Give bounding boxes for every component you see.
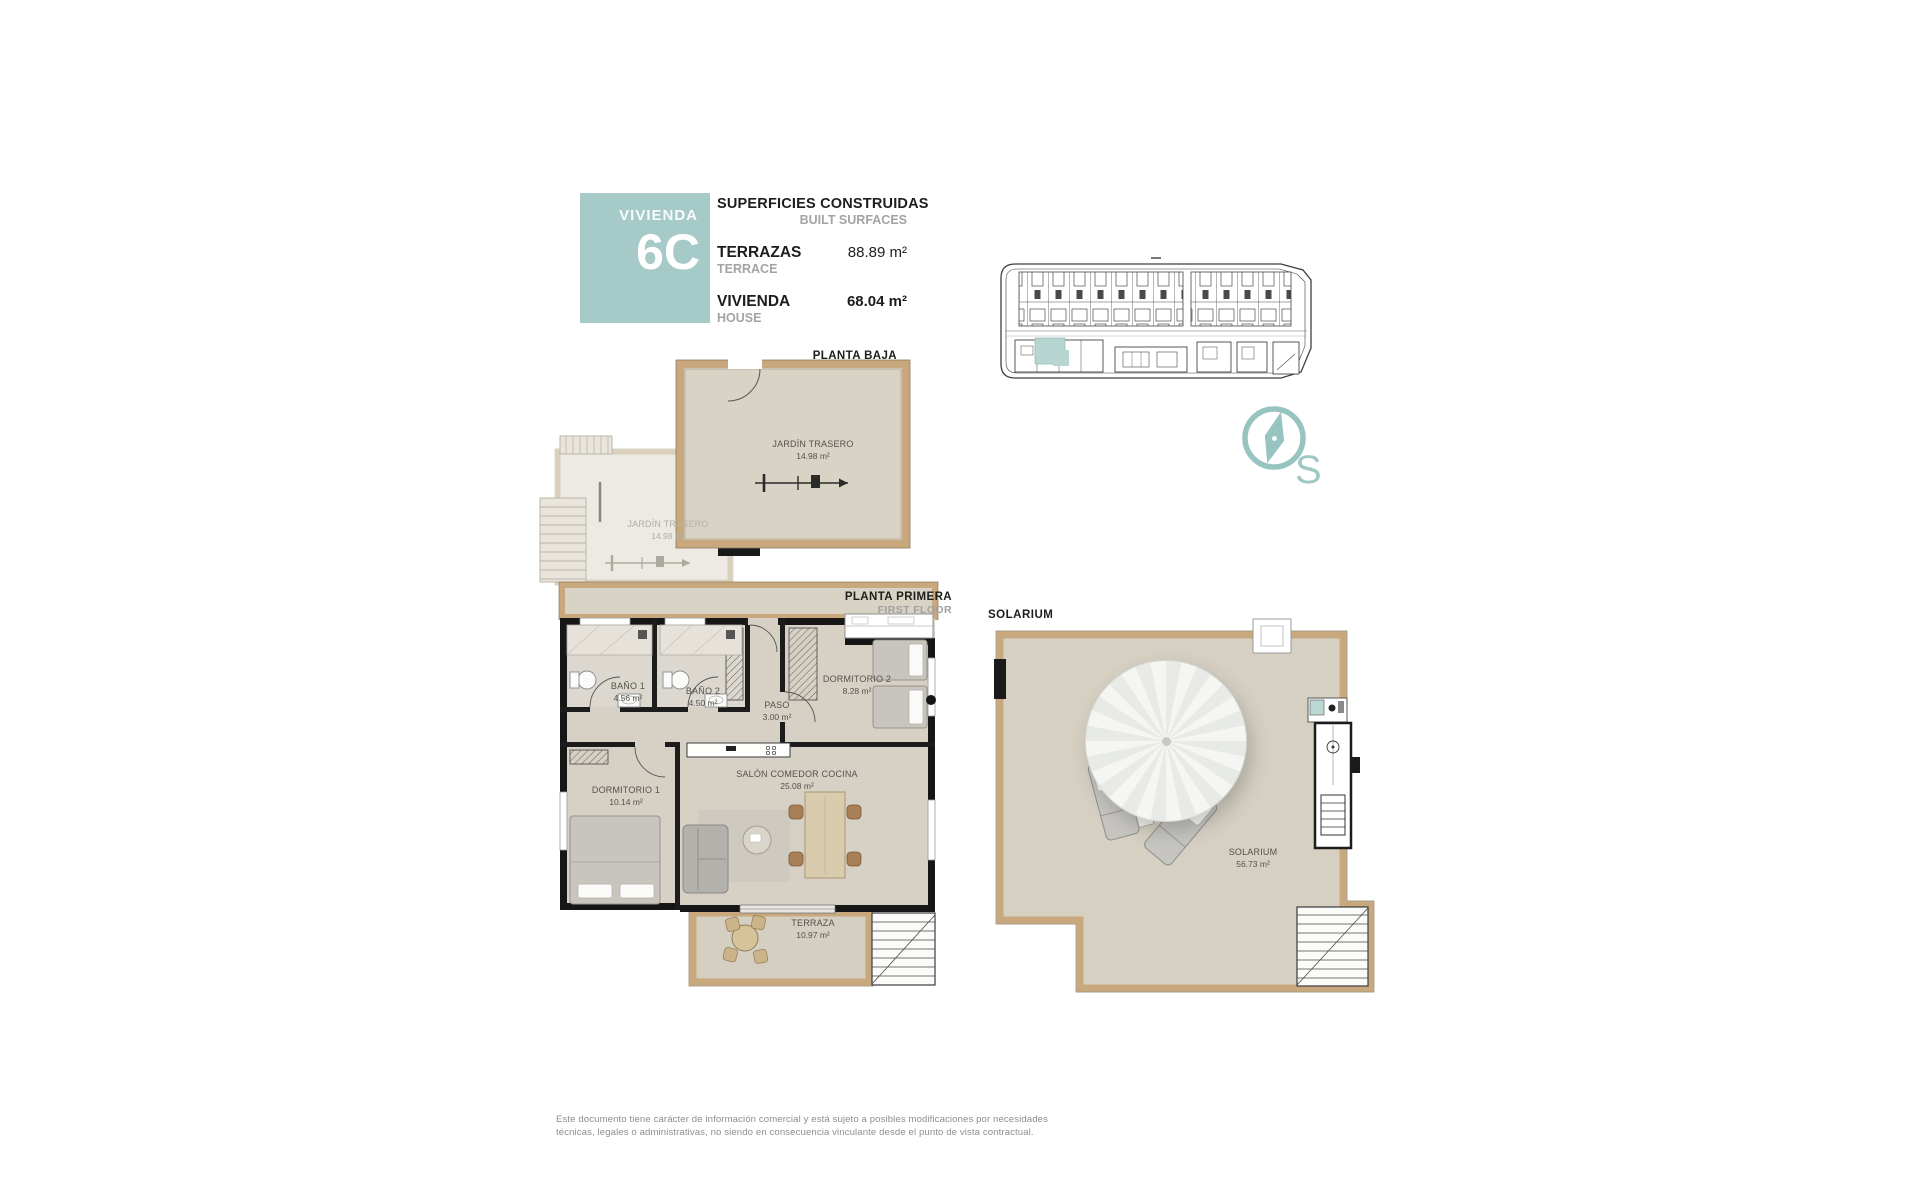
room-label-bano-1: BAÑO 1 4.56 m² (611, 680, 645, 704)
built-surfaces-table: SUPERFICIES CONSTRUIDAS BUILT SURFACES T… (717, 196, 907, 325)
surface-value: 68.04 m² (847, 293, 907, 310)
disclaimer-line-2: técnicas, legales o administrativas, no … (556, 1126, 1076, 1139)
surfaces-heading-es: SUPERFICIES CONSTRUIDAS (717, 196, 907, 212)
shower-tray-icon (1253, 619, 1291, 653)
stairs-icon (1297, 907, 1368, 986)
stairs-icon (540, 498, 586, 582)
floor-plan-sheet: VIVIENDA 6C SUPERFICIES CONSTRUIDAS BUIL… (0, 0, 1920, 1200)
room-label-terraza: TERRAZA 10.97 m² (791, 917, 834, 941)
stairs-icon (560, 436, 612, 454)
coffee-table-icon (743, 826, 771, 854)
room-label-dormitorio-2: DORMITORIO 2 8.28 m² (823, 673, 891, 697)
room-label-jardin-trasero: JARDÍN TRASERO 14.98 m² (772, 438, 853, 462)
surface-label-en: TERRACE (717, 262, 801, 276)
room-label-salon-comedor-cocina: SALÓN COMEDOR COCINA 25.08 m² (736, 768, 858, 792)
compass: S (1238, 398, 1338, 506)
utility-counter-icon (845, 614, 933, 638)
stairs-icon (872, 913, 935, 985)
surface-row-terrazas: TERRAZAS TERRACE 88.89 m² (717, 244, 907, 276)
disclaimer: Este documento tiene carácter de informa… (556, 1113, 1076, 1139)
boiler-icon (926, 695, 936, 705)
surface-label-en: HOUSE (717, 311, 790, 325)
room-label-bano-2: BAÑO 2 4.50 m² (686, 685, 720, 709)
sofa-icon (683, 825, 728, 893)
ground-floor-plan (530, 350, 950, 620)
surface-label-es: VIVIENDA (717, 293, 790, 311)
bar-unit-icon (1308, 698, 1360, 848)
double-bed-icon (570, 816, 660, 904)
disclaimer-line-1: Este documento tiene carácter de informa… (556, 1113, 1076, 1126)
surface-label-es: TERRAZAS (717, 244, 801, 262)
compass-icon (1238, 398, 1338, 506)
terrace (689, 909, 873, 986)
unit-badge: VIVIENDA 6C (580, 193, 710, 323)
umbrella-icon (1085, 660, 1247, 822)
unit-number: 6C (580, 227, 710, 277)
surface-value: 88.89 m² (848, 244, 907, 261)
unit-badge-label: VIVIENDA (580, 193, 710, 224)
room-label-solarium: SOLARIUM 56.73 m² (1229, 846, 1278, 870)
compass-south-label: S (1295, 448, 1322, 493)
access-door (994, 659, 1006, 699)
kitchen-counter-icon (687, 743, 790, 757)
surface-row-vivienda: VIVIENDA HOUSE 68.04 m² (717, 293, 907, 325)
room-label-dormitorio-1: DORMITORIO 1 10.14 m² (592, 784, 660, 808)
surfaces-heading-en: BUILT SURFACES (717, 213, 907, 227)
site-plan (985, 252, 1335, 397)
room-label-jardin-trasero-adjacent: JARDÍN TRASERO 14.98 m² (627, 518, 708, 542)
room-label-paso: PASO 3.00 m² (763, 699, 792, 723)
north-tick (1151, 257, 1161, 259)
